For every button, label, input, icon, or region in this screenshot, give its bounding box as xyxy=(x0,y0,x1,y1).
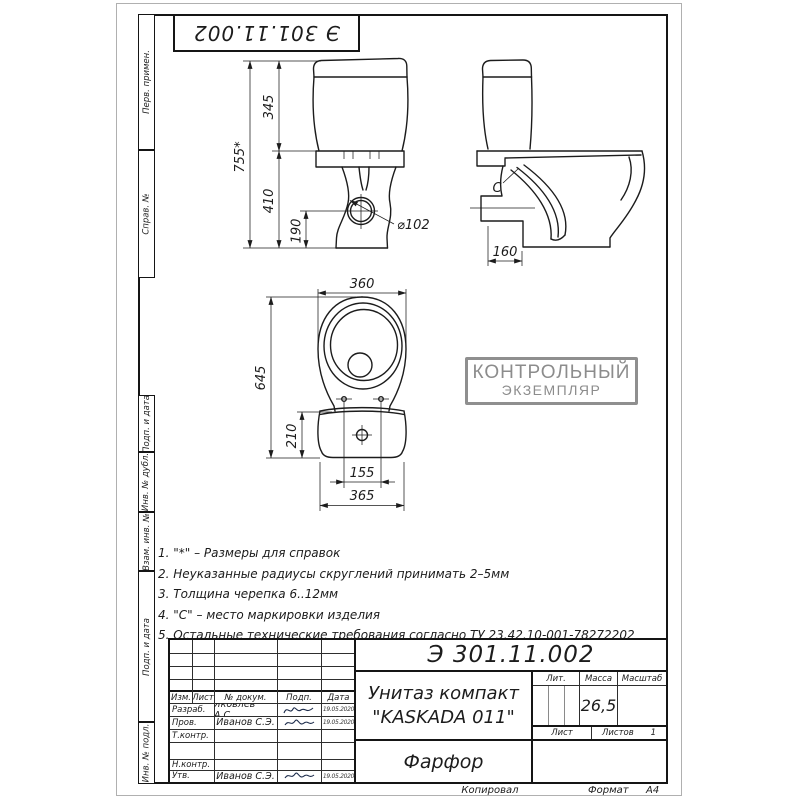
front-pedestal xyxy=(336,167,349,248)
signature xyxy=(277,770,321,782)
row-role: Разраб. xyxy=(170,703,214,716)
format-label: Формат xyxy=(588,785,629,796)
designation-cell: Э 301.11.002 xyxy=(356,640,666,670)
row-name: Яковлев А.С. xyxy=(214,703,277,716)
sheet-label: Лист xyxy=(533,727,591,739)
plan-drain-hole xyxy=(348,353,372,377)
row-role: Пров. xyxy=(170,716,214,729)
col-date: Дата xyxy=(321,692,356,703)
lit-label: Лит. xyxy=(533,672,579,685)
part-name-line2: "KASKADA 011" xyxy=(372,706,514,729)
col-izm: Изм. xyxy=(170,692,192,703)
signature xyxy=(277,703,321,716)
format-value: А4 xyxy=(646,785,659,796)
dim-outlet-offset: 160 xyxy=(493,245,518,260)
side-bowl-outline xyxy=(610,151,644,247)
row-role: Н.контр. xyxy=(170,759,214,770)
material-cell: Фарфор xyxy=(356,741,531,782)
copied-label: Копировал xyxy=(445,785,535,796)
dim-tank-depth: 210 xyxy=(285,424,300,449)
mass-value: 26,5 xyxy=(580,685,617,725)
row-date: 19.05.2020 xyxy=(321,716,356,729)
sheets-value: 1 xyxy=(651,728,656,738)
sheets-cell: Листов 1 xyxy=(592,727,666,739)
dim-outlet-height: 190 xyxy=(290,219,305,244)
row-name: Иванов С.Э. xyxy=(214,770,277,782)
signature xyxy=(277,716,321,729)
mark-location-label: С xyxy=(492,181,502,196)
front-tank-lid xyxy=(314,58,408,77)
side-foot-outline xyxy=(481,166,610,247)
dim-bowl-height: 410 xyxy=(262,189,277,214)
plan-bowl-outline xyxy=(362,297,406,411)
row-role: Т.контр. xyxy=(170,729,214,742)
side-view: С 160 xyxy=(470,60,644,266)
dim-bowl-width: 360 xyxy=(350,277,375,292)
dim-total-length: 645 xyxy=(254,366,269,391)
front-tank-body xyxy=(313,77,319,151)
col-sign: Подп. xyxy=(277,692,321,703)
part-name-cell: Унитаз компакт "KASKADA 011" xyxy=(356,672,531,739)
dim-total-height: 755* xyxy=(233,141,248,173)
mass-label: Масса xyxy=(580,672,617,685)
side-tank-body xyxy=(483,77,488,149)
plan-view: 360 645 210 155 365 xyxy=(254,277,406,511)
dim-outlet-diameter: ⌀102 xyxy=(397,218,430,233)
part-name-line1: Унитаз компакт xyxy=(368,682,519,705)
row-date: 19.05.2020 xyxy=(321,770,356,782)
front-view: 755* 345 410 190 ⌀102 xyxy=(233,58,430,248)
dim-tank-width: 365 xyxy=(350,489,375,504)
dim-bolt-spacing: 155 xyxy=(350,466,375,481)
row-name: Иванов С.Э. xyxy=(214,716,277,729)
col-list: Лист xyxy=(192,692,214,703)
drawing-page: Перв. примен. Справ. № Подп. и дата Инв.… xyxy=(0,0,800,800)
row-date: 19.05.2020 xyxy=(321,703,356,716)
row-role: Утв. xyxy=(170,770,214,782)
front-rim-plate xyxy=(316,151,404,167)
dim-tank-height: 345 xyxy=(262,95,277,120)
sheets-label: Листов xyxy=(602,728,634,738)
side-tank-lid xyxy=(483,60,532,77)
title-block: Э 301.11.002 Унитаз компакт "KASKADA 011… xyxy=(168,638,668,784)
scale-label: Масштаб xyxy=(618,672,666,685)
col-doc: № докум. xyxy=(214,692,277,703)
